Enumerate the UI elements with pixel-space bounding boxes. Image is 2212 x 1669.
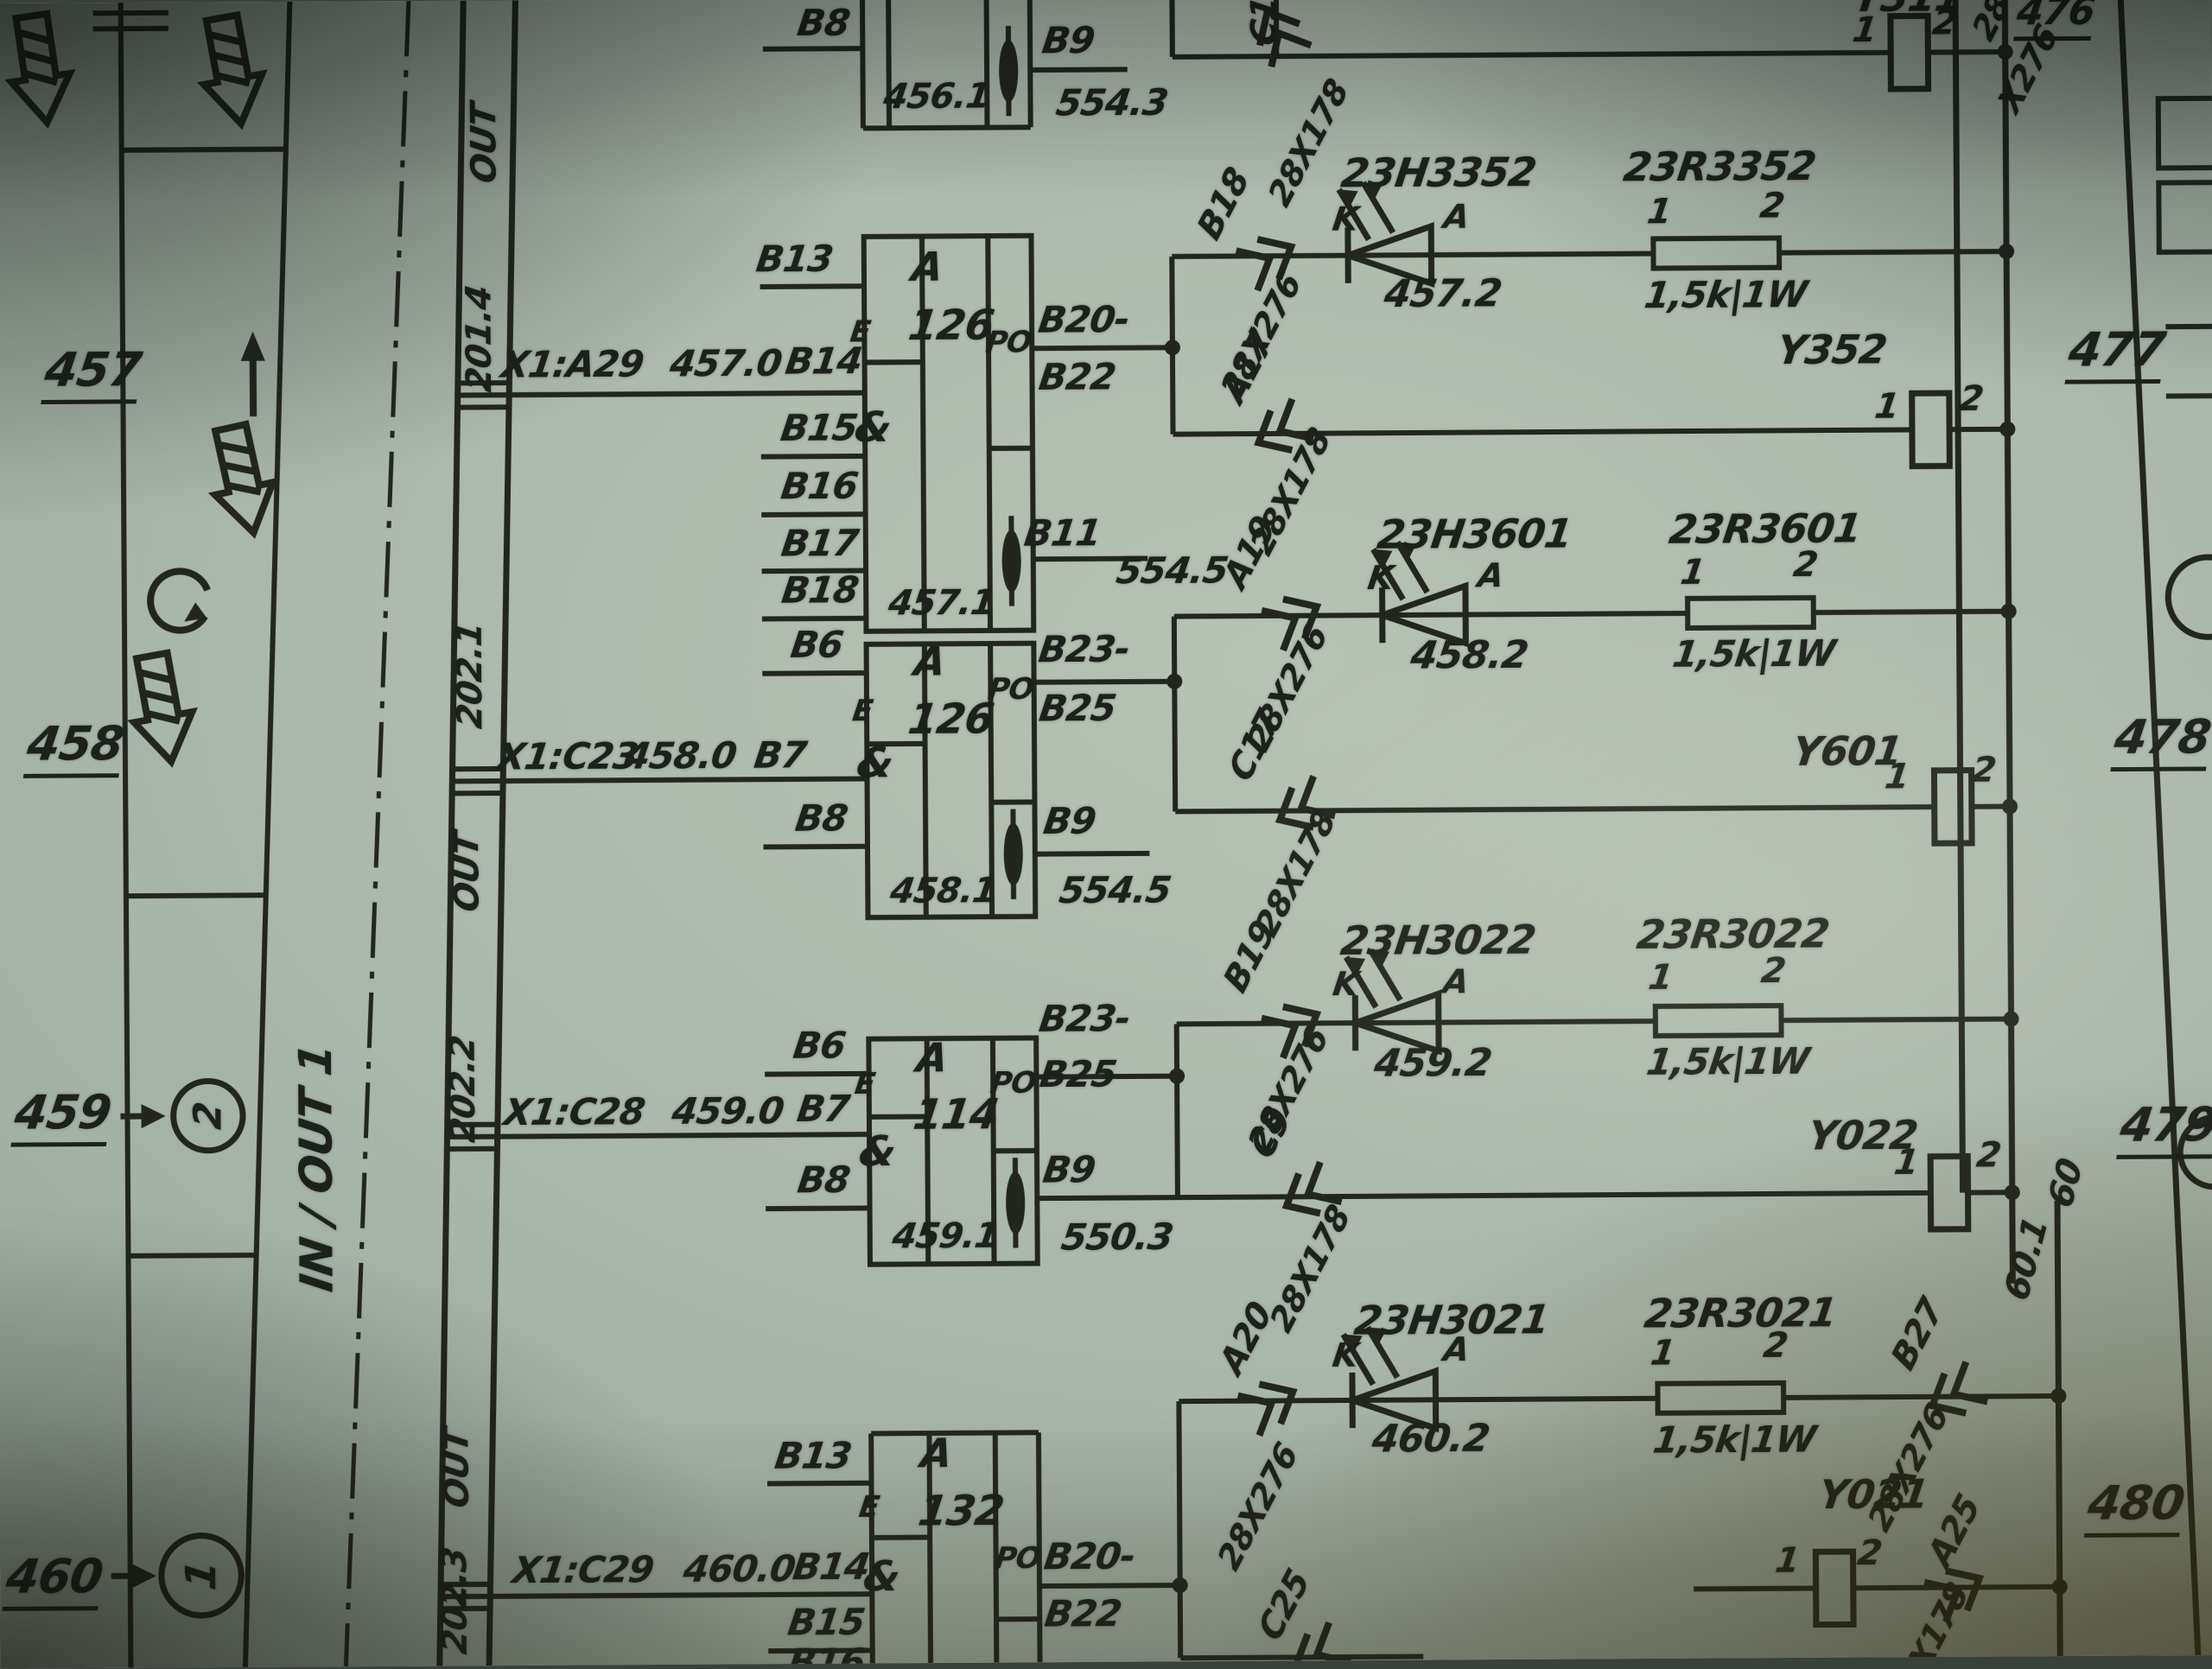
lamp-arrow-icon <box>123 650 200 767</box>
pin-b9: B9 <box>1041 799 1098 842</box>
feed-x1-c29: X1:C29 <box>510 1548 656 1591</box>
led-title-23h3022: 23H3022 <box>1338 916 1538 964</box>
pin-b8: B8 <box>795 1 852 44</box>
resistor-23R3022 <box>1656 1006 1782 1036</box>
pin-amp: & <box>854 739 896 788</box>
pin-b7: B7 <box>795 1087 852 1130</box>
pin-b17: B17 <box>779 522 860 565</box>
pin-po: PO <box>983 325 1033 360</box>
resistor-23R3021 <box>1657 1383 1783 1413</box>
led-k: K <box>1331 1336 1361 1374</box>
led-title-23h3352: 23H3352 <box>1338 149 1539 197</box>
row-label-476: 476 <box>2013 0 2097 41</box>
wire-c15: C15 <box>1244 0 1285 48</box>
block-sub-457-1: 457.1 <box>887 583 997 624</box>
led-a: A <box>1441 1330 1471 1368</box>
bus-out-label: OUT <box>464 102 505 186</box>
relay-Y601 <box>1934 771 1972 844</box>
pin-b8: B8 <box>793 796 850 840</box>
block-letter-a: A <box>914 1034 950 1081</box>
row-label-458: 458 <box>23 716 127 778</box>
pin-b9: B9 <box>1039 19 1096 62</box>
row-label-478: 478 <box>2110 709 2212 771</box>
relay-y352-label: Y352 <box>1774 326 1889 373</box>
pin-b7: B7 <box>752 733 809 777</box>
resistor-value: 1,5k|1W <box>1670 631 1838 675</box>
connector-symbol <box>1003 809 1023 899</box>
block-letter-a: A <box>918 1430 955 1476</box>
inout-label: IN / OUT 1 <box>290 1041 344 1294</box>
connector-symbol <box>1001 516 1021 606</box>
led-num-459-2: 459.2 <box>1371 1041 1494 1086</box>
lamp-arrow-icon <box>3 12 77 127</box>
led-a: A <box>1476 556 1505 594</box>
schematic-photo: 457 458 459 460 2 1 IN / OUT 1 OUT 201.4… <box>0 0 2212 1669</box>
lamp-arrow-icon <box>202 422 283 539</box>
feed-x1-a29: X1:A29 <box>499 342 646 385</box>
bus-out-label: OUT <box>436 1426 477 1510</box>
feed-x1-c28: X1:C28 <box>501 1090 647 1133</box>
bus-tap-202-1: 202.1 <box>449 620 490 731</box>
relay-Y021 <box>1815 1552 1853 1625</box>
pin-po: PO <box>988 1066 1038 1101</box>
relay-Y352 <box>1912 393 1950 466</box>
feed-460-0: 460.0 <box>681 1547 798 1590</box>
pin-b25: B25 <box>1037 1052 1118 1095</box>
pin-b13: B13 <box>753 238 835 281</box>
rotation-arrow-icon <box>150 571 208 631</box>
dest-554-3: 554.3 <box>1053 81 1170 124</box>
pin-amp: & <box>856 1127 899 1177</box>
pin-b13: B13 <box>772 1434 854 1477</box>
pin-b8: B8 <box>795 1158 852 1202</box>
feed-457-0: 457.0 <box>667 342 784 385</box>
led-a: A <box>1441 198 1471 236</box>
diamond-arrow-icon <box>111 1564 156 1588</box>
block-letter-a: A <box>909 243 945 289</box>
pin-b6: B6 <box>788 623 845 666</box>
relay-y021-label: Y021 <box>1816 1470 1931 1518</box>
led-k: K <box>1331 965 1361 1003</box>
resistor-value: 1,5k|1W <box>1642 273 1809 316</box>
feed-x1-c23: X1:C23 <box>495 734 641 777</box>
dest-554-5: 554.5 <box>1114 549 1230 592</box>
block-sub-456-1: 456.1 <box>881 76 992 117</box>
relay-Y311 <box>1891 16 1929 89</box>
led-title-23h3601: 23H3601 <box>1375 510 1575 558</box>
bus-out-label: OUT <box>447 830 487 914</box>
led-num-458-2: 458.2 <box>1408 633 1531 678</box>
right-bus-and-border <box>1955 0 2212 1657</box>
resistor-title-23r3352: 23R3352 <box>1621 143 1819 191</box>
led-num-460-2: 460.2 <box>1370 1417 1492 1462</box>
led-k: K <box>1365 559 1395 597</box>
block-number-126: 126 <box>906 301 996 350</box>
pin-b18: B18 <box>779 568 861 612</box>
resistor-value: 1,5k|1W <box>1644 1040 1812 1083</box>
led-k: K <box>1331 200 1361 238</box>
output-wires <box>1030 0 2060 1659</box>
resistor-value: 1,5k|1W <box>1650 1418 1818 1461</box>
schematic-linework <box>0 0 2212 1669</box>
feed-458-0: 458.0 <box>622 734 739 777</box>
row-label-477: 477 <box>2064 322 2168 384</box>
block-letter-a: A <box>912 638 948 684</box>
left-margin-symbols <box>3 10 289 1616</box>
crossing-A20 <box>1238 1372 1304 1436</box>
block-number-126: 126 <box>906 695 996 744</box>
resistor-title-23r3021: 23R3021 <box>1642 1289 1840 1337</box>
row-label-460: 460 <box>3 1549 106 1611</box>
dest-550-3: 550.3 <box>1058 1215 1175 1259</box>
block-number-132: 132 <box>916 1487 1007 1536</box>
pin-b15: B15 <box>785 1601 867 1644</box>
row-label-480: 480 <box>2084 1475 2188 1538</box>
resistor-23R3601 <box>1688 598 1814 628</box>
pin-b16: B16 <box>779 465 860 508</box>
up-arrow-icon <box>240 332 265 417</box>
connector-symbol <box>999 26 1019 117</box>
bus-tap-201-4: 201.4 <box>459 283 499 394</box>
pin-b22: B22 <box>1036 355 1117 398</box>
bus-tap-202-3: 202.3 <box>435 1545 475 1656</box>
resistor-title-23r3601: 23R3601 <box>1667 505 1865 553</box>
pin-b23: B23- <box>1037 997 1133 1040</box>
pin-b15: B15 <box>779 406 860 449</box>
pin-b6: B6 <box>791 1024 848 1067</box>
lamp-arrow-icon <box>193 13 270 130</box>
components <box>999 16 1977 1629</box>
row-label-459: 459 <box>10 1085 114 1147</box>
pin-b20: B20- <box>1042 1535 1138 1578</box>
pin-b11: B11 <box>1021 511 1103 555</box>
resistor-23R3352 <box>1653 238 1779 269</box>
boundary-and-bus <box>336 0 526 1666</box>
pin-po: PO <box>993 1541 1042 1577</box>
row-label-479: 479 <box>2116 1097 2212 1159</box>
pin-b20: B20- <box>1036 298 1132 341</box>
block-sub-458-1: 458.1 <box>888 871 999 911</box>
pin-b9: B9 <box>1040 1148 1097 1191</box>
dest-554-5: 554.5 <box>1057 868 1173 911</box>
bus-tap-202-2: 202.2 <box>442 1034 483 1145</box>
pin-b16: B16 <box>785 1640 867 1669</box>
pin-b22: B22 <box>1042 1592 1123 1635</box>
led-num-457-2: 457.2 <box>1382 271 1504 316</box>
feed-459-0: 459.0 <box>670 1089 786 1133</box>
block-sub-459-1: 459.1 <box>890 1216 1001 1257</box>
left-margin-structure <box>92 2 300 1668</box>
row-label-457: 457 <box>41 342 144 404</box>
pin-b23: B23- <box>1036 627 1132 670</box>
connector-symbol <box>1006 1158 1026 1248</box>
resistor-title-23r3022: 23R3022 <box>1634 910 1832 958</box>
led-a: A <box>1440 962 1470 1000</box>
pin-b25: B25 <box>1037 687 1118 730</box>
pin-po: PO <box>986 672 1035 708</box>
pin-b14: B14 <box>791 1545 872 1588</box>
pin-amp: & <box>861 1552 903 1602</box>
crossing-C25 <box>1285 1622 1351 1668</box>
